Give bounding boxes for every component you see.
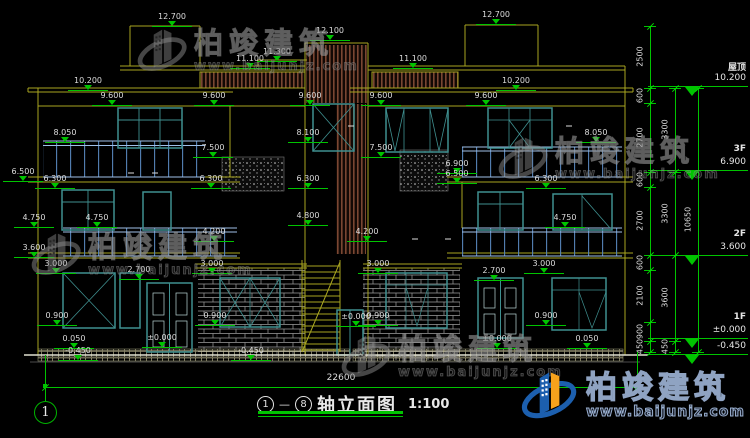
title-underline-thick [258, 411, 403, 414]
axis-end-bubble: 8 [295, 396, 312, 413]
brand-logo: 柏竣建筑 www.baijunjz.com [520, 364, 745, 428]
watermark-brand: 柏竣建筑 [194, 28, 359, 58]
watermark-brand: 柏竣建筑 [88, 232, 253, 262]
watermark-logo-icon [30, 226, 84, 284]
watermark: 柏竣建筑 www.baijunjz.com [136, 22, 359, 80]
watermark-url: www.baijunjz.com [194, 60, 359, 74]
watermark-logo-icon [497, 130, 551, 188]
title-underline-thin [258, 416, 403, 417]
watermark-logo-icon [340, 328, 394, 386]
cad-elevation-drawing: 12.70012.70012.10011.30011.10011.10010.2… [0, 0, 750, 438]
brand-url: www.baijunjz.com [586, 405, 745, 420]
watermark-brand: 柏竣建筑 [398, 334, 563, 364]
watermark-url: www.baijunjz.com [88, 264, 253, 278]
watermark-url: www.baijunjz.com [555, 168, 720, 182]
drawing-scale: 1:100 [408, 397, 449, 412]
brand-name: 柏竣建筑 [586, 372, 745, 404]
axis-grid-bubble: 1 [34, 401, 57, 424]
axis-range-dash: — [279, 398, 290, 411]
axis-start-bubble: 1 [257, 396, 274, 413]
watermark-brand: 柏竣建筑 [555, 136, 720, 166]
watermark: 柏竣建筑 www.baijunjz.com [30, 226, 253, 284]
watermark-logo-icon [136, 22, 190, 80]
brand-logo-icon [520, 364, 580, 428]
watermark: 柏竣建筑 www.baijunjz.com [497, 130, 720, 188]
